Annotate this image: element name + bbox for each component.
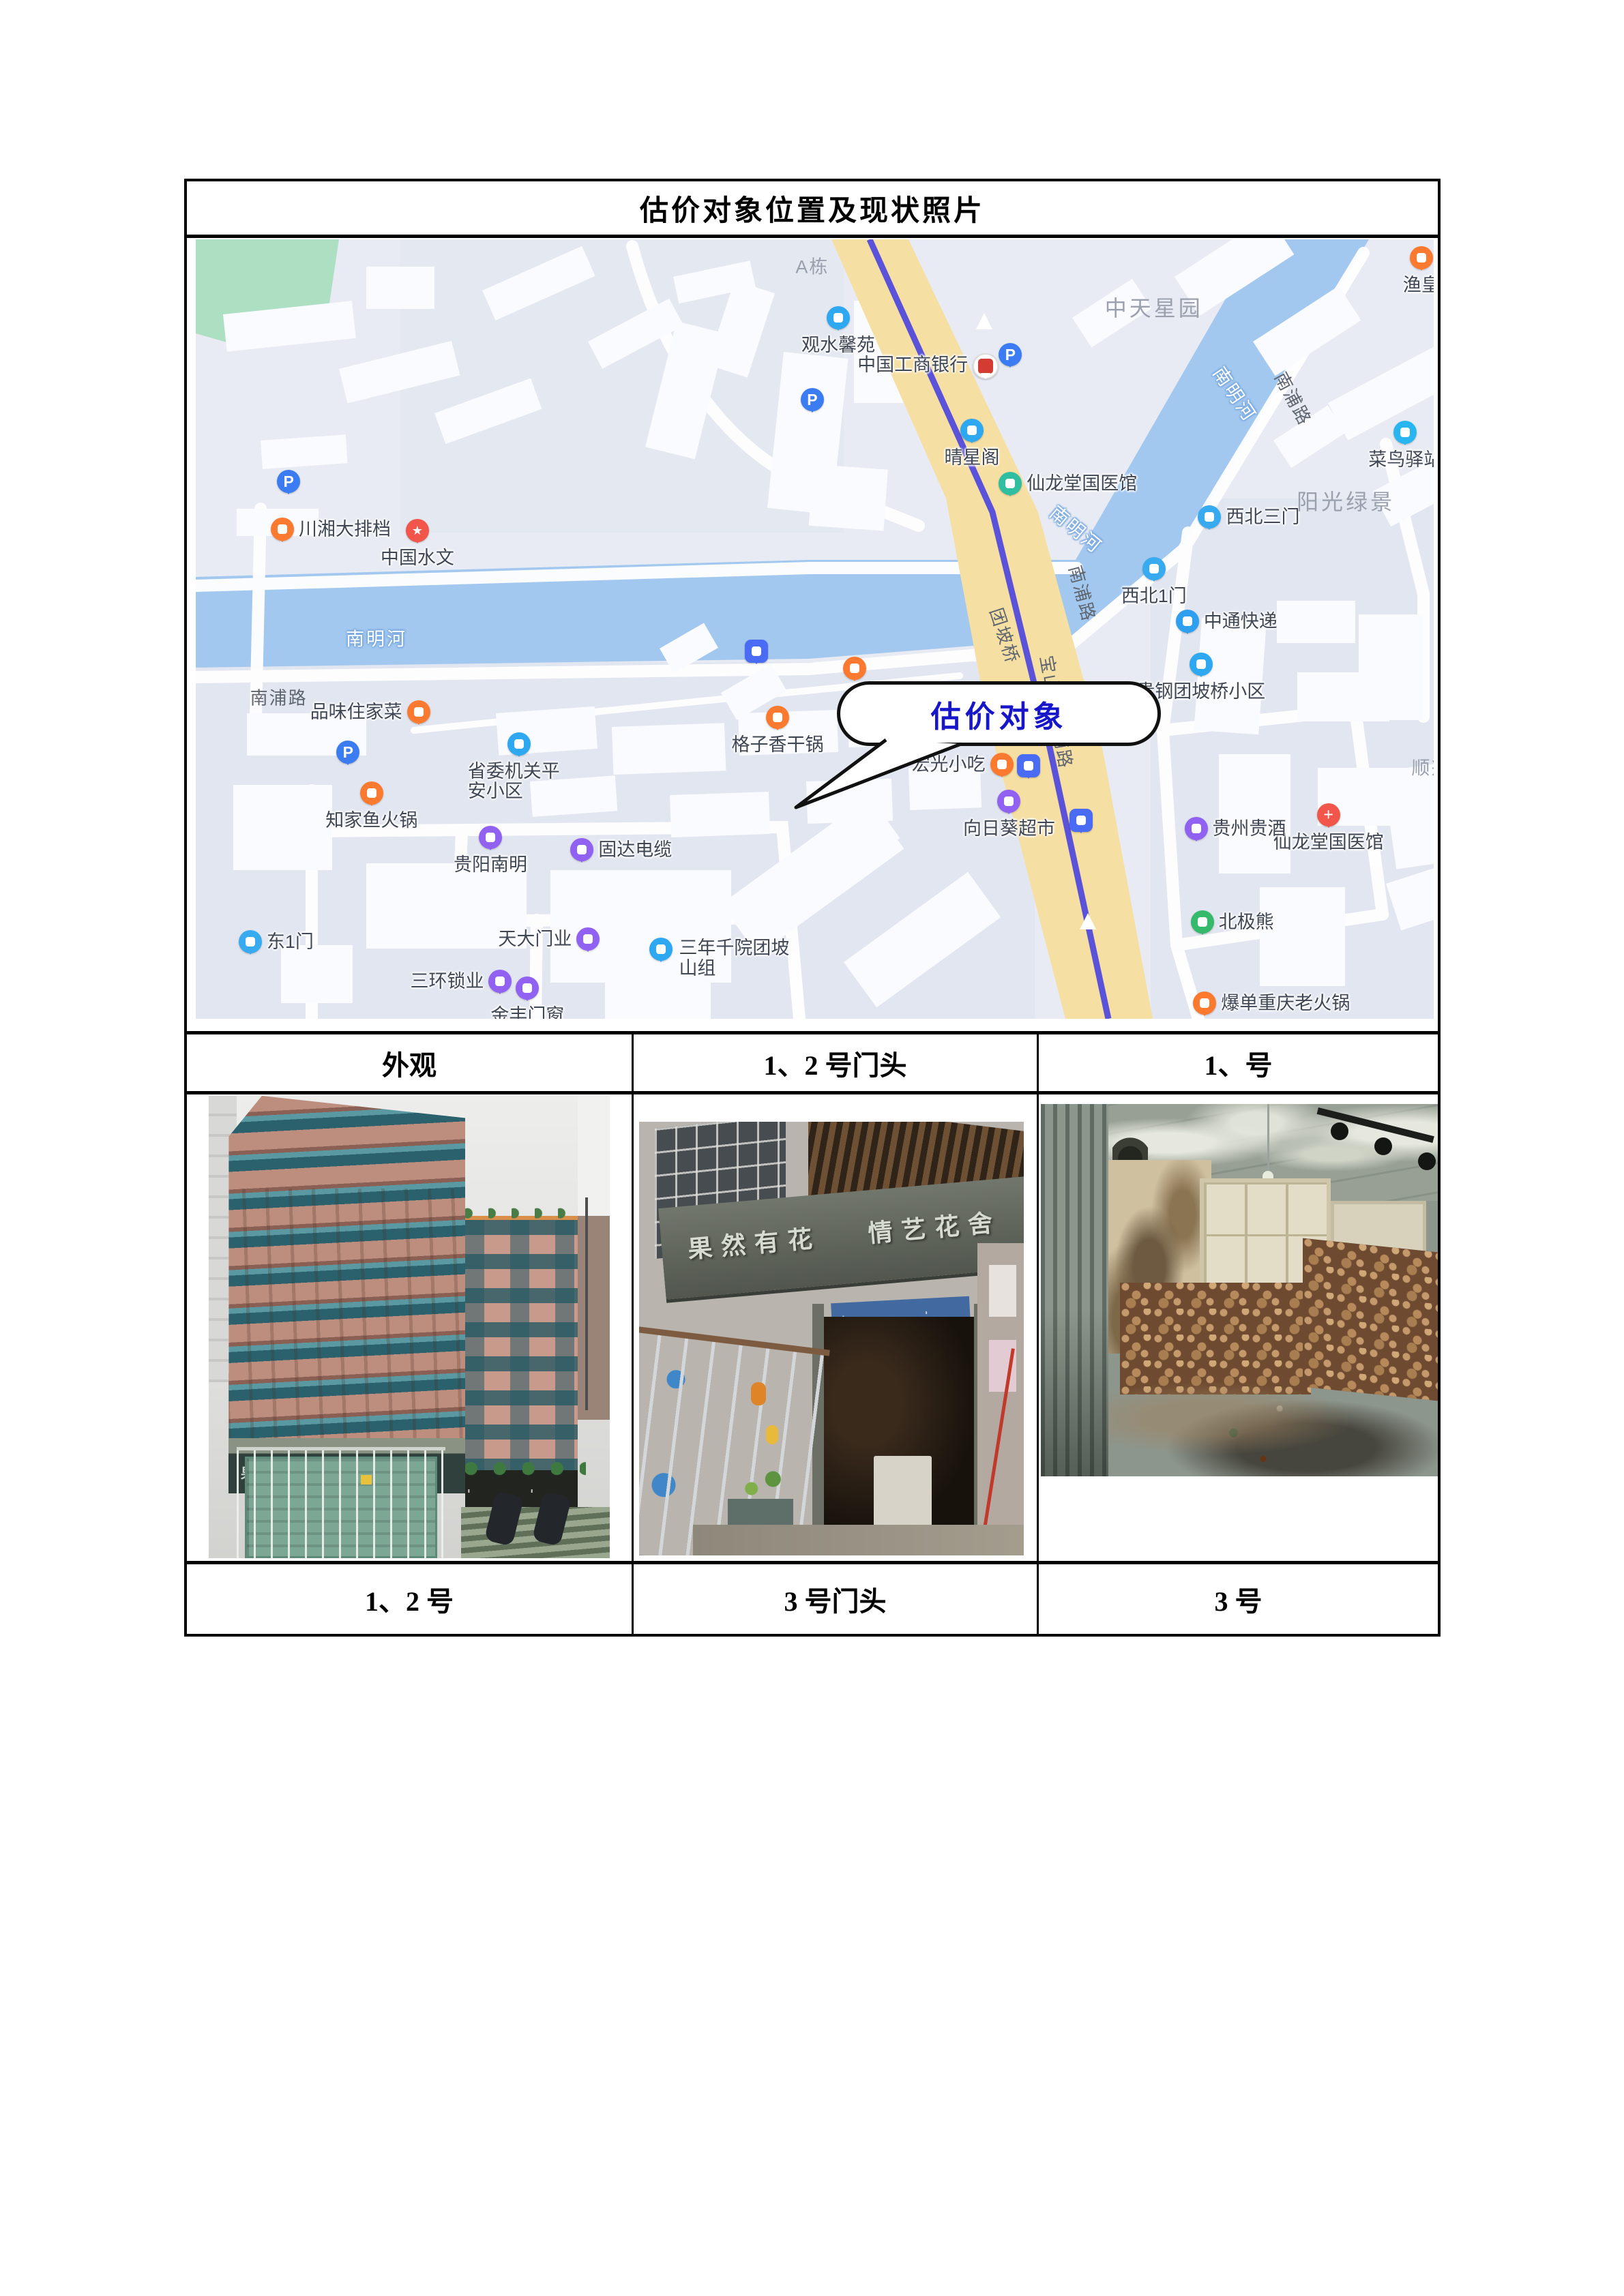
dirty-floor [1108,1380,1438,1476]
photo-footer-row: 1、2 号 3 号门头 3 号 [187,1564,1438,1634]
hanging-item [751,1382,766,1405]
photo-header-row: 外观 1、2 号门头 1、号 [187,1034,1438,1094]
hanging-item [766,1425,778,1444]
sky-patch [578,1096,610,1216]
photo-building-exterior: 果然有花 情艺花舍 [209,1096,610,1558]
appraisal-callout: 估价对象 [837,681,1161,746]
building-right-wing [465,1216,578,1479]
map-area-label: 顺兴 [1411,753,1434,779]
shutter-shadow [1041,1309,1108,1476]
map-area-label: 阳光绿景 [1297,485,1395,516]
location-map: 川湘大排档中国水文品味住家菜知家鱼火锅省委机关平安小区贵阳南明固达电缆东1门天大… [196,239,1434,1019]
page-title: 估价对象位置及现状照片 [640,188,985,229]
hanging-wire [1267,1104,1269,1175]
track-light [1374,1137,1392,1155]
wall-posters [989,1265,1016,1317]
photo-interior [1041,1104,1438,1476]
metal-fence [237,1447,445,1558]
footer-no-1-2: 1、2 号 [187,1564,634,1634]
street-plants [465,1452,585,1480]
header-exterior: 外观 [187,1034,634,1091]
ground [693,1525,1024,1555]
background-building [578,1216,610,1419]
track-light [1331,1122,1348,1140]
stone-wallpaper-right [1303,1238,1438,1401]
utility-pole [585,1197,588,1410]
facade-vines [228,1189,465,1466]
title-row: 估价对象位置及现状照片 [187,181,1438,238]
map-river-label: 南明河 [346,625,407,651]
map-row: 川湘大排档中国水文品味住家菜知家鱼火锅省委机关平安小区贵阳南明固达电缆东1门天大… [187,238,1438,1034]
photo-storefront: 果然有花 情艺花舍 [639,1122,1024,1555]
white-cabinet [874,1456,932,1530]
appraisal-callout-label: 估价对象 [931,692,1067,736]
track-light [1418,1152,1436,1170]
signboard-right-text: 情艺花舍 [866,1203,1003,1250]
map-area-label: 中天星园 [1105,291,1203,323]
map-road-label: 南浦路 [1064,563,1103,625]
map-text-layer: A栋中天星园阳光绿景顺兴南浦路南浦路南浦路南明河南明河南明河团坡桥宝山南路辅路 [196,239,1434,1019]
map-area-label: A栋 [795,252,829,278]
rooftop-plants [465,1202,578,1221]
map-road-label: 南浦路 [250,684,308,709]
signboard-left-text: 果然有花 [686,1219,823,1266]
document-page: 估价对象位置及现状照片 [0,0,1624,2296]
photo-row: 果然有花 情艺花舍 果然 [187,1094,1438,1564]
stone-wallpaper-left [1120,1283,1310,1395]
header-door-1-2: 1、2 号门头 [634,1034,1039,1091]
map-river-label: 南明河 [1045,498,1109,558]
photo-cell-storefront: 果然有花 情艺花舍 [634,1094,1039,1561]
footer-no-3: 3 号 [1039,1564,1438,1634]
photo-cell-exterior: 果然有花 情艺花舍 [187,1094,634,1561]
document-table: 估价对象位置及现状照片 [184,179,1441,1637]
map-river-label: 南明河 [1207,361,1264,426]
header-no-1: 1、号 [1039,1034,1438,1091]
map-road-label: 团坡桥 [984,604,1026,666]
map-road-label: 南浦路 [1269,367,1318,430]
footer-door-3: 3 号门头 [634,1564,1039,1634]
photo-cell-interior [1039,1094,1438,1561]
